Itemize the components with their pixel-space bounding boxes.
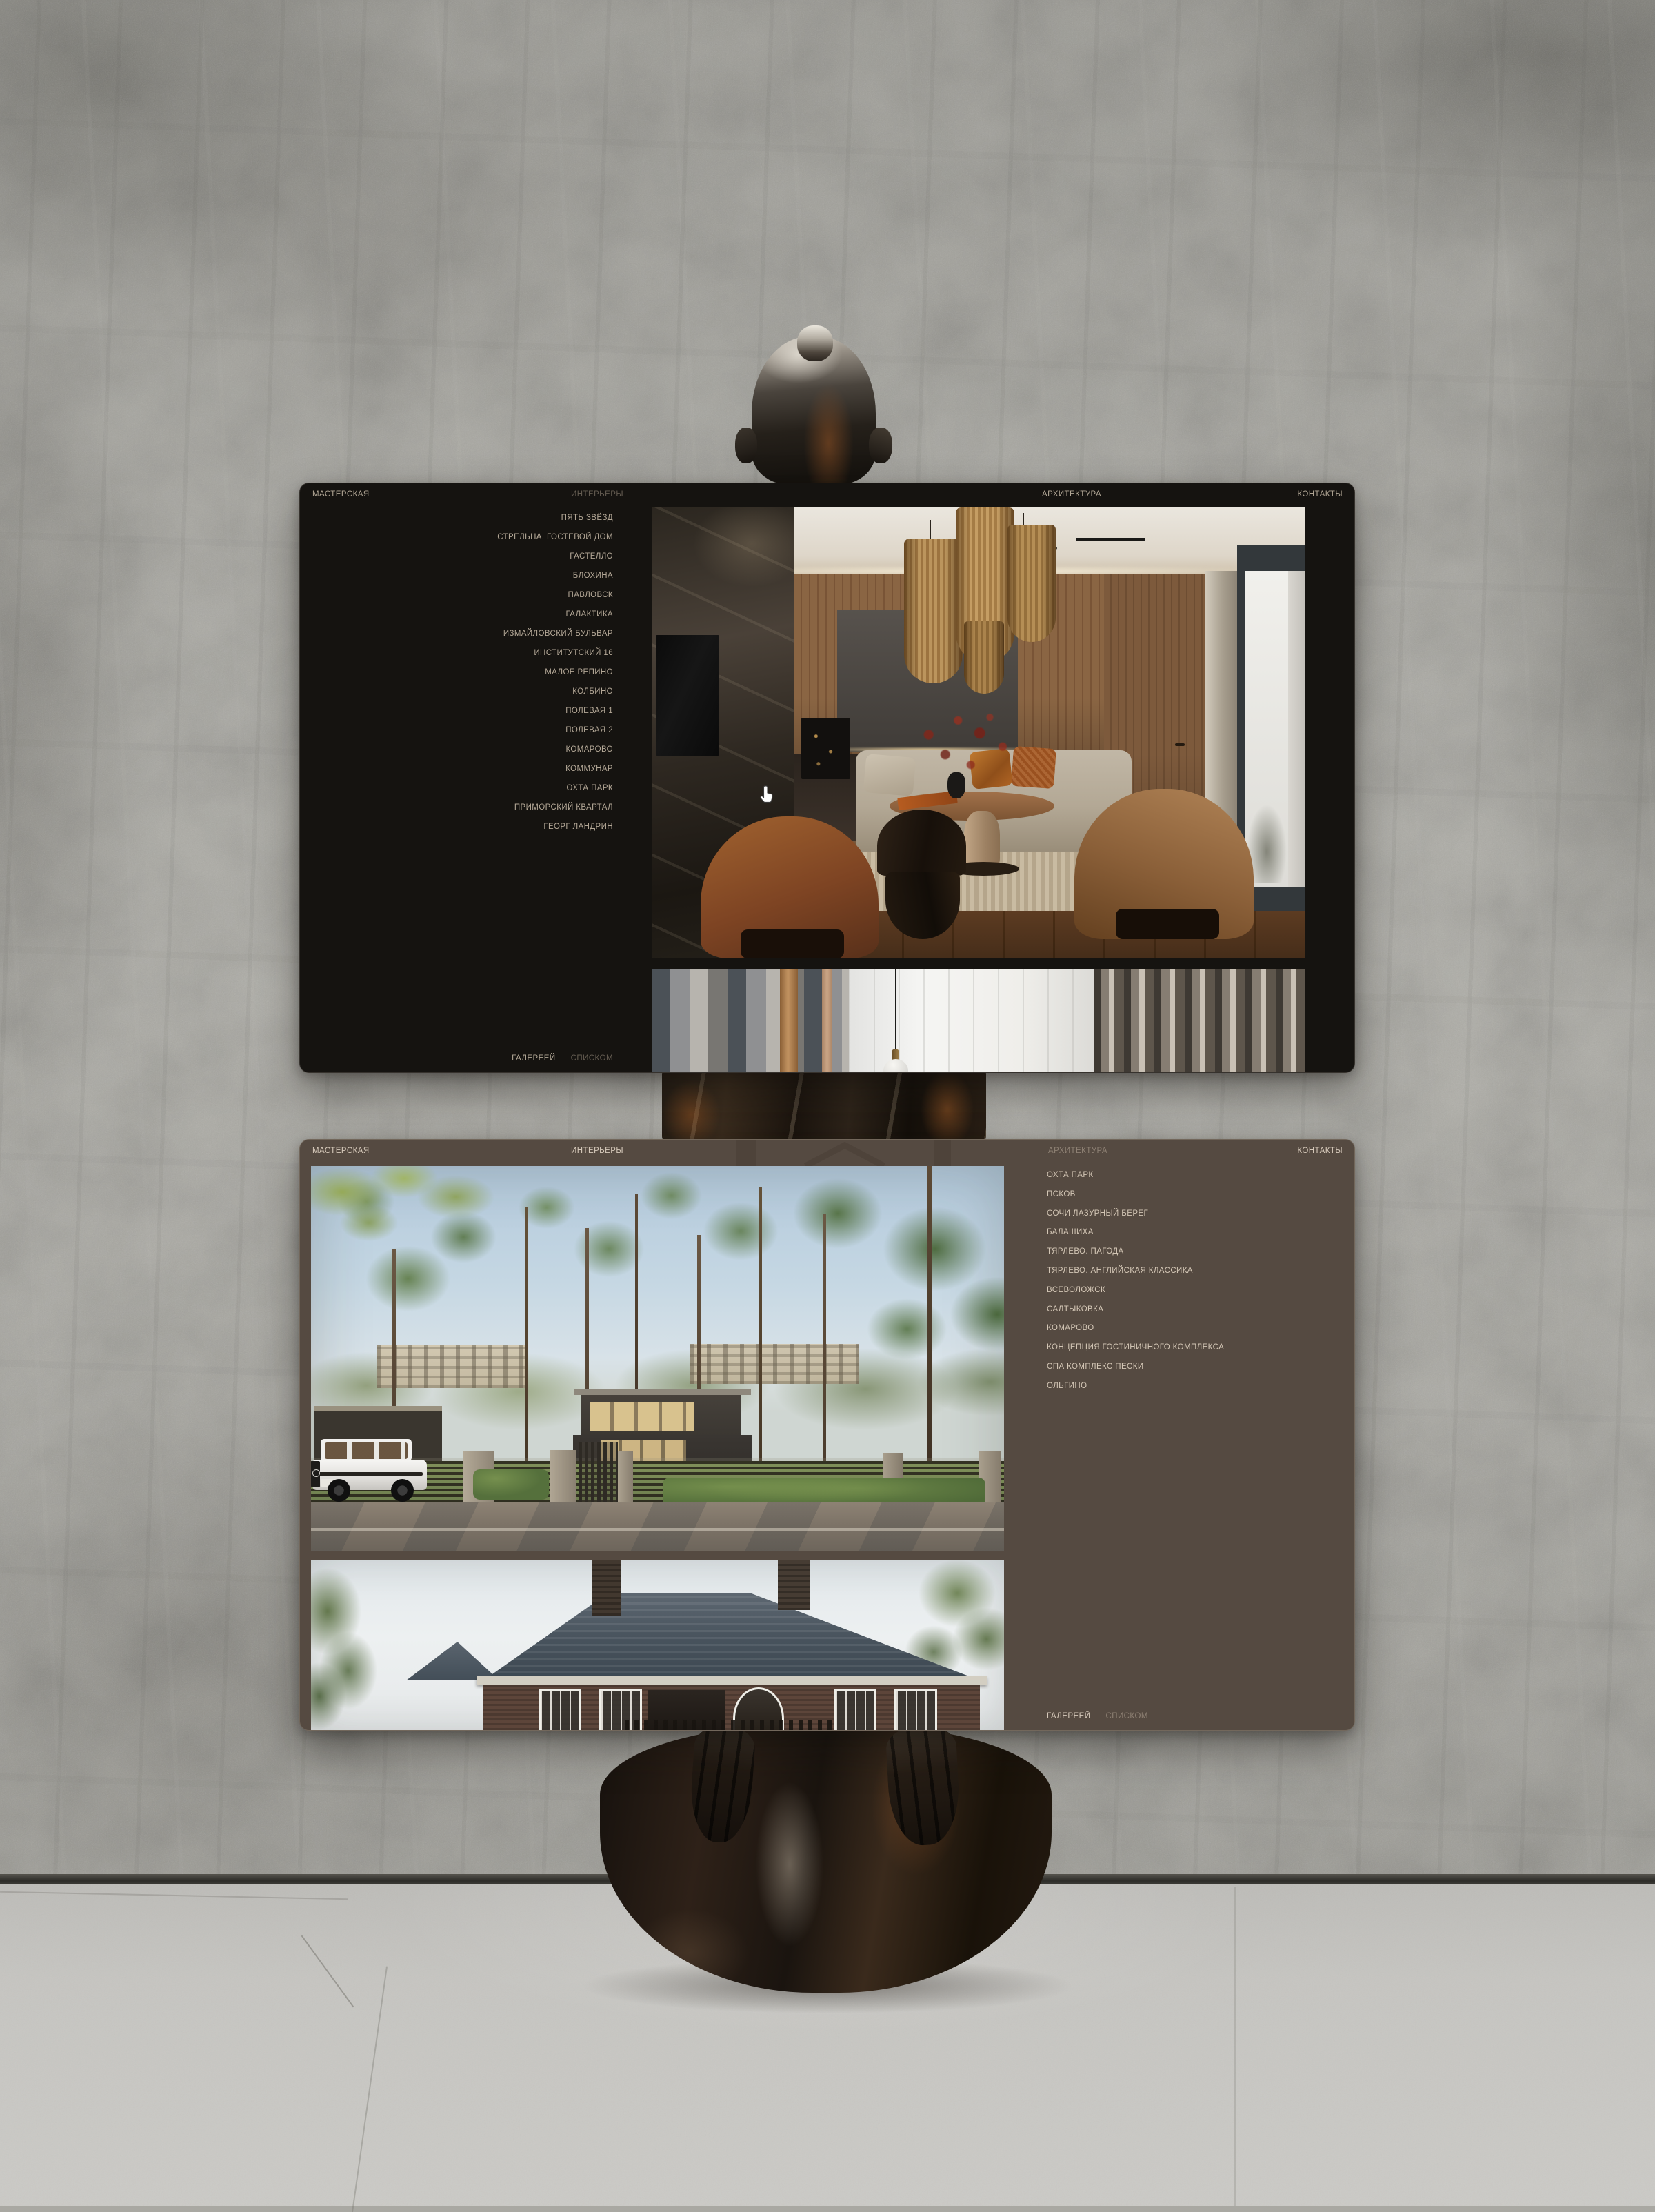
sculpture-torso [662,1067,986,1143]
estate-curb-line [311,1528,1004,1531]
interior-rattan-pendant-left [904,539,963,683]
brand-logo-text[interactable]: МАСТЕРСКАЯ [312,1146,370,1156]
estate-gate [579,1442,618,1502]
interior-rattan-pendant-right [1007,525,1056,642]
estate-modern-house-upper-glass [590,1402,694,1431]
interiors-menu-item[interactable]: СТРЕЛЬНА. ГОСТЕВОЙ ДОМ [300,527,613,547]
architecture-menu-item[interactable]: ТЯРЛЕВО. ПАГОДА [1047,1243,1343,1262]
nav-tab-interiors[interactable]: ИНТЕРЬЕРЫ [571,1146,623,1156]
interiors-menu-item[interactable]: КОММУНАР [300,759,613,778]
estate-modern-house-roof [574,1389,751,1395]
architecture-menu-item[interactable]: КОМАРОВО [1047,1319,1343,1338]
nav-tab-architecture[interactable]: АРХИТЕКТУРА [1042,490,1101,499]
gwagon-star-emblem [312,1469,320,1477]
gwagon-wheel-rear [391,1479,414,1502]
gallery-photo-interior[interactable] [652,507,1305,958]
house-window-1 [539,1689,581,1730]
sculpture-head-topknot [797,325,833,361]
interior-door-handle [1175,743,1185,746]
interiors-menu-item[interactable]: МАЛОЕ РЕПИНО [300,663,613,682]
curtain-left-panels [652,969,849,1072]
pendant-lamp-cord [895,969,896,1052]
view-toggle-gallery[interactable]: ГАЛЕРЕЕЙ [512,1054,555,1063]
gwagon-side-stripe [318,1472,423,1476]
interiors-menu-item[interactable]: ГАЛАКТИКА [300,605,613,624]
interior-wine-fridge [801,718,850,779]
gallery-photo-estate[interactable] [311,1166,1004,1551]
house-tree-left [311,1560,394,1730]
gallery-photo-curtains[interactable] [652,969,1305,1072]
interior-window-sheer [1288,571,1305,887]
interior-armchair-right-base [1116,909,1219,939]
interiors-menu-item[interactable]: КОЛБИНО [300,682,613,701]
interiors-menu-item[interactable]: ПОЛЕВАЯ 2 [300,721,613,740]
house-roof-porch [406,1642,499,1680]
interior-tv-screen [656,635,719,756]
browser-window-architecture: МАСТЕРСКАЯ ИНТЕРЬЕРЫ АРХИТЕКТУРА КОНТАКТ… [299,1139,1355,1731]
view-toggle: ГАЛЕРЕЕЙ СПИСКОМ [1047,1712,1148,1720]
interior-flower-branches [901,711,1028,790]
house-eaves-trim [477,1676,987,1685]
cursor-pointer-icon [759,785,777,805]
architecture-menu-item[interactable]: САЛТЫКОВКА [1047,1300,1343,1320]
architecture-menu-item[interactable]: СОЧИ ЛАЗУРНЫЙ БЕРЕГ [1047,1205,1343,1224]
house-window-4 [894,1689,937,1730]
interior-armchair-left-base [741,929,844,958]
curtain-wood-slat [780,969,798,1072]
house-chimney-left [592,1560,621,1616]
estate-hedge-small [473,1469,549,1500]
view-toggle-list[interactable]: СПИСКОМ [571,1054,613,1063]
interior-side-table-top-bowl [877,810,966,876]
view-toggle-list[interactable]: СПИСКОМ [1105,1712,1147,1720]
architecture-menu-item[interactable]: ОЛЬГИНО [1047,1377,1343,1396]
architecture-menu-item[interactable]: ВСЕВОЛОЖСК [1047,1281,1343,1300]
interior-track-light [1076,538,1145,541]
curtain-sheer-center [849,969,1094,1072]
interiors-menu-item[interactable]: ИНСТИТУТСКИЙ 16 [300,643,613,663]
interiors-menu-item[interactable]: ПАВЛОВСК [300,585,613,605]
interiors-menu-item[interactable]: ПРИМОРСКИЙ КВАРТАЛ [300,798,613,817]
architecture-project-menu: ОХТА ПАРКПСКОВСОЧИ ЛАЗУРНЫЙ БЕРЕГБАЛАШИХ… [1047,1166,1343,1396]
browser-window-interiors: МАСТЕРСКАЯ ИНТЕРЬЕРЫ АРХИТЕКТУРА КОНТАКТ… [299,483,1355,1073]
house-window-3 [834,1689,876,1730]
interiors-menu-item[interactable]: ГЕОРГ ЛАНДРИН [300,817,613,836]
view-toggle-gallery[interactable]: ГАЛЕРЕЕЙ [1047,1712,1090,1720]
interiors-menu-item[interactable]: ГАСТЕЛЛО [300,547,613,566]
interiors-project-menu: ПЯТЬ ЗВЁЗДСТРЕЛЬНА. ГОСТЕВОЙ ДОМГАСТЕЛЛО… [300,508,613,836]
nav-tab-contacts[interactable]: КОНТАКТЫ [1297,490,1343,499]
design-presentation-scene: { "top_window": { "header": { "brand": "… [0,0,1655,2206]
estate-road [311,1502,1004,1551]
estate-foreground-leaves [311,1166,518,1269]
house-chimney-right [778,1560,810,1610]
view-toggle: ГАЛЕРЕЕЙ СПИСКОМ [300,1054,613,1063]
architecture-menu-item[interactable]: СПА КОМПЛЕКС ПЕСКИ [1047,1358,1343,1377]
nav-tab-interiors-active[interactable]: ИНТЕРЬЕРЫ [571,490,623,499]
estate-fence-pillar-3 [618,1451,633,1502]
architecture-menu-item[interactable]: ПСКОВ [1047,1185,1343,1205]
curtain-right-panels [1094,969,1305,1072]
interior-rattan-pendant-low [964,621,1004,694]
sculpture-ear-left [735,428,757,463]
gwagon-wheel-front [328,1479,350,1502]
interiors-menu-item[interactable]: ИЗМАЙЛОВСКИЙ БУЛЬВАР [300,624,613,643]
interiors-menu-item[interactable]: ОХТА ПАРК [300,778,613,798]
estate-fence-pillar-2 [550,1450,576,1502]
architecture-menu-item[interactable]: КОНЦЕПЦИЯ ГОСТИНИЧНОГО КОМПЛЕКСА [1047,1338,1343,1358]
floor-seam-right-vertical [1234,1887,1236,2206]
gwagon-windows [325,1442,408,1459]
curtain-wood-slat-thin [822,969,832,1072]
estate-gwagon [311,1436,432,1502]
nav-tab-architecture-active[interactable]: АРХИТЕКТУРА [1048,1146,1107,1156]
architecture-menu-item[interactable]: БАЛАШИХА [1047,1223,1343,1243]
interiors-menu-item[interactable]: КОМАРОВО [300,740,613,759]
watermark-logo [728,1140,962,1166]
house-foreground-railing [625,1720,835,1730]
sculpture-ear-right [869,428,892,463]
architecture-menu-item[interactable]: ОХТА ПАРК [1047,1166,1343,1185]
interiors-menu-item[interactable]: БЛОХИНА [300,566,613,585]
architecture-menu-item[interactable]: ТЯРЛЕВО. АНГЛИЙСКАЯ КЛАССИКА [1047,1262,1343,1281]
interiors-menu-item[interactable]: ПЯТЬ ЗВЁЗД [300,508,613,527]
nav-tab-contacts[interactable]: КОНТАКТЫ [1297,1146,1343,1156]
brand-logo-text[interactable]: МАСТЕРСКАЯ [312,490,370,499]
gallery-photo-house[interactable] [311,1560,1004,1730]
interiors-menu-item[interactable]: ПОЛЕВАЯ 1 [300,701,613,721]
